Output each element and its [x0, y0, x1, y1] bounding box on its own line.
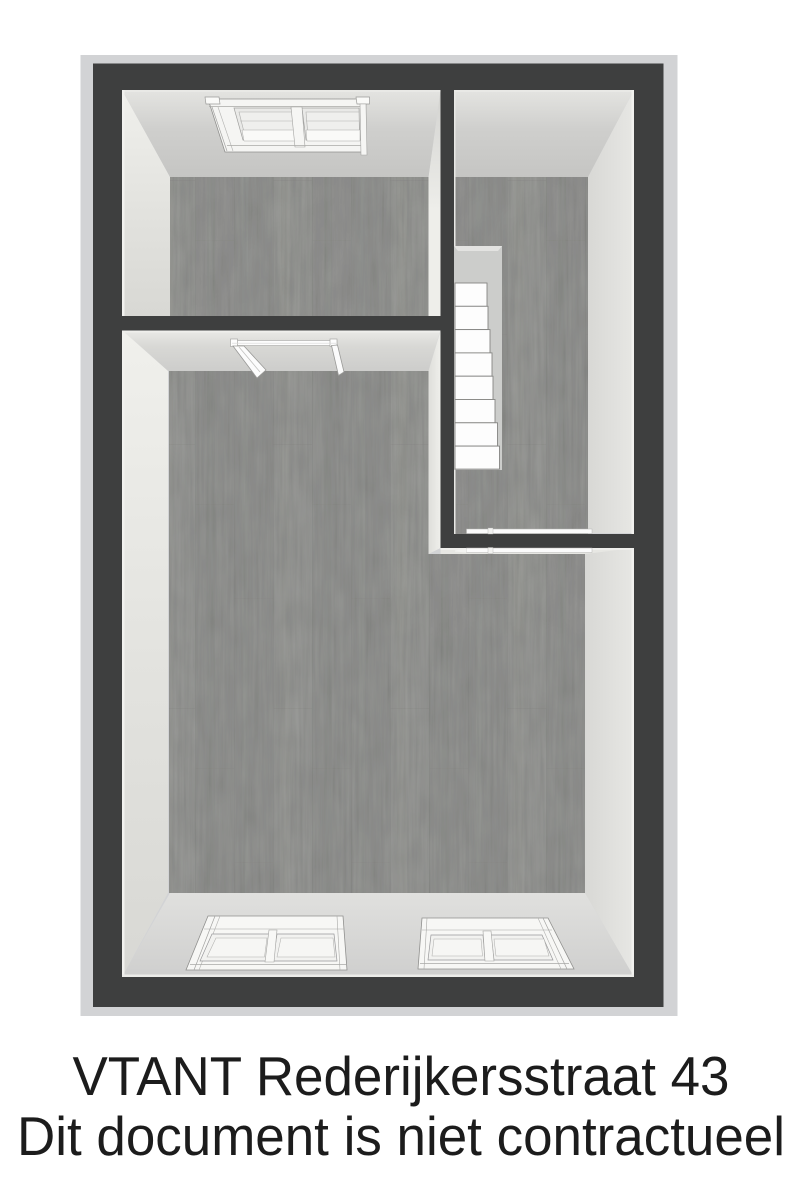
svg-text:Dit document is niet contractu: Dit document is niet contractueel [17, 1105, 785, 1167]
svg-text:VTANT Rederijkersstraat 43: VTANT Rederijkersstraat 43 [73, 1045, 730, 1107]
